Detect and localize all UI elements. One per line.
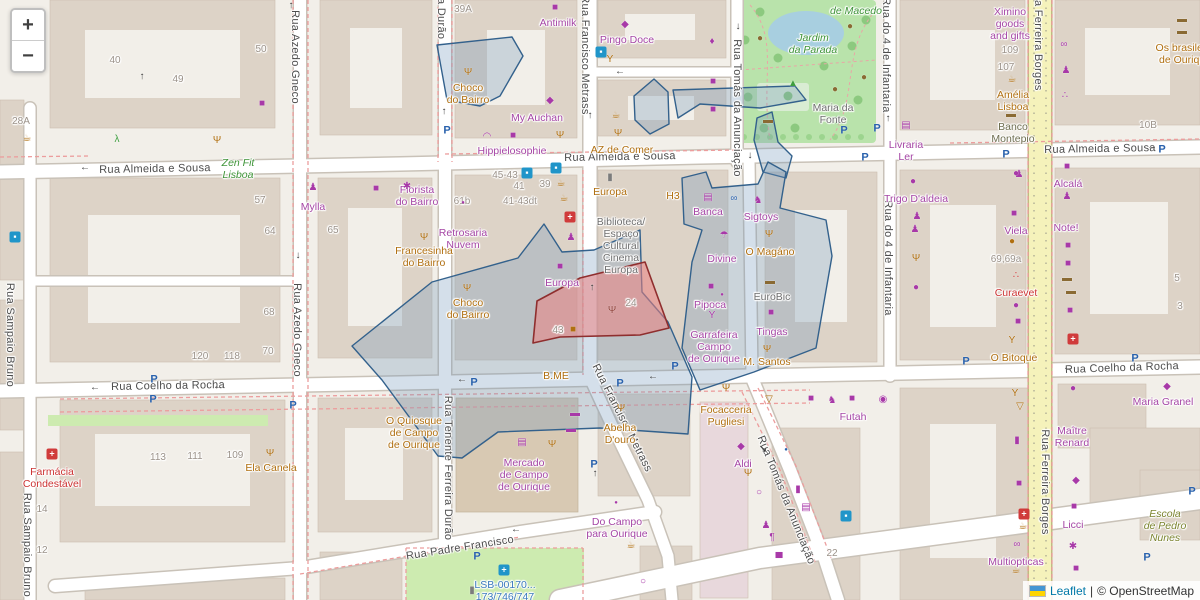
books-icon: ▤: [901, 121, 910, 131]
clothes-icon: ■: [808, 394, 814, 404]
charging-station-icon: +: [499, 565, 510, 576]
street-name-label: Rua Tenente Ferreira Durão: [435, 0, 447, 39]
optician-icon: ∞: [1013, 540, 1020, 550]
person-icon: ♟: [567, 233, 576, 243]
poi-label: Banca: [693, 206, 723, 218]
house-number-label: 109: [1002, 45, 1019, 57]
cafe-icon: ☕: [1008, 75, 1017, 85]
monument-icon: ▮: [469, 586, 475, 596]
scooter-icon: ■: [1015, 317, 1021, 327]
street-name-label: Rua Ferreira Borges: [1032, 0, 1044, 91]
supermarket-cart-icon: ◆: [737, 442, 745, 452]
playground-icon: ▲: [788, 79, 798, 89]
ukraine-flag-icon: [1029, 585, 1046, 597]
cafe-icon: ☕: [612, 111, 621, 121]
parking-icon: P: [470, 378, 477, 389]
house-number-label: 107: [998, 62, 1015, 74]
house-number-label: 14: [36, 504, 47, 516]
poi-label: Maria Granel: [1133, 396, 1194, 408]
parking-icon: P: [861, 153, 868, 164]
oneway-arrow-icon: ↑: [289, 0, 294, 12]
zoom-control: + −: [10, 8, 46, 73]
runner-icon: λ: [115, 135, 120, 145]
poi-label: Os brasileirade Ourique: [1156, 42, 1200, 66]
house-number-label: 41: [513, 181, 524, 193]
sofa-icon: ▄: [775, 548, 782, 558]
bar-icon: Y: [1012, 389, 1019, 399]
leaflet-link[interactable]: Leaflet: [1050, 584, 1086, 598]
poi-label: O Magáno: [745, 246, 794, 258]
florist-icon: ✱: [1069, 542, 1077, 552]
clothes-icon: ■: [552, 3, 558, 13]
bakery-icon: ●: [1013, 301, 1019, 311]
toys-icon: ♞: [828, 396, 837, 406]
poi-label: Alcalá: [1054, 178, 1083, 190]
street-name-label: Rua do 4 de Infantaria: [882, 200, 894, 315]
cake-icon: ♦: [709, 37, 714, 47]
florist-icon: ✱: [403, 182, 411, 192]
house-number-label: 50: [255, 44, 266, 56]
house-number-label: 70: [262, 346, 273, 358]
hat-icon: ◠: [483, 132, 492, 142]
oneway-arrow-icon: ←: [615, 66, 625, 78]
supermarket-cart-icon: ◆: [1163, 382, 1171, 392]
street-name-label: Rua Coelho da Rocha: [1065, 360, 1179, 376]
poi-label: Francesinhado Bairro: [395, 245, 453, 269]
clothes-icon: ■: [710, 77, 716, 87]
planter-icon: ●: [757, 34, 763, 44]
poi-label: Zen FitLisboa: [222, 157, 255, 181]
poi-label: Curaevet: [995, 287, 1038, 299]
poi-label: Europa: [545, 277, 579, 289]
clothes-icon: ■: [1011, 209, 1017, 219]
clothes-icon: ■: [1071, 502, 1077, 512]
poi-label: Licci: [1062, 519, 1083, 531]
fastfood-icon: ▬: [1177, 15, 1187, 25]
house-number-label: 113: [150, 452, 166, 464]
house-number-label: 65: [327, 225, 338, 237]
street-name-label: Rua Almeida e Sousa: [1044, 142, 1156, 156]
poi-label: H3: [666, 190, 679, 202]
poi-label: Tingas: [756, 326, 787, 338]
clothes-icon: ■: [1073, 564, 1079, 574]
cafe-icon: ☕: [1012, 566, 1021, 576]
oneway-arrow-icon: ←: [90, 382, 100, 394]
parking-icon: P: [289, 401, 296, 412]
stall-icon: ▤: [703, 193, 712, 203]
poi-label: Hippielosophie: [478, 145, 547, 157]
poi-dot-icon: ●: [614, 500, 618, 506]
poi-label: Futah: [840, 411, 867, 423]
poi-label: Note!: [1053, 222, 1078, 234]
person-icon: ♟: [1063, 192, 1072, 202]
zoom-in-button[interactable]: +: [12, 10, 44, 41]
cafe-icon: ☕: [560, 194, 569, 204]
poi-label: Mercadode Campode Ourique: [498, 457, 550, 493]
poi-label: FocacceriaPugliesi: [700, 404, 751, 428]
parking-icon: P: [962, 357, 969, 368]
cafe-icon: ☕: [627, 541, 636, 551]
banknote-icon: ▬: [765, 277, 775, 287]
wine-icon: Y: [709, 311, 716, 321]
poi-label: Maria daFonte: [813, 102, 854, 126]
poi-label: Europa: [593, 186, 627, 198]
key-icon: ■: [1065, 259, 1071, 269]
oneway-arrow-icon: →: [1147, 141, 1157, 153]
bakery-icon: ●: [1009, 237, 1015, 247]
parking-icon: P: [149, 395, 156, 406]
optician-icon: ∞: [1060, 40, 1067, 50]
monument-icon: ▮: [607, 173, 613, 183]
street-name-label: Rua Tomás da Anunciação: [731, 39, 743, 177]
zoom-out-button[interactable]: −: [12, 41, 44, 71]
cafe-icon: ☕: [557, 179, 566, 189]
poi-label: MaîtreRenard: [1055, 425, 1089, 449]
bus-stop-icon: ▪: [841, 511, 852, 522]
oneway-arrow-icon: ←: [213, 381, 223, 393]
clothes-icon: ■: [259, 99, 265, 109]
shop-icon: ■: [570, 325, 576, 335]
supermarket-cart-icon: ◆: [1072, 476, 1080, 486]
poi-label: Biblioteca/EspaçoCulturalCinemaEuropa: [597, 216, 645, 276]
poi-label: Chocodo Bairro: [447, 82, 490, 106]
map-canvas[interactable]: Rua Almeida e SousaRua Almeida e SousaRu…: [0, 0, 1200, 600]
street-name-label: Rua Azedo Gneco: [289, 10, 301, 104]
parking-icon: P: [150, 375, 157, 386]
clothes-icon: ■: [1016, 479, 1022, 489]
house-number-label: 111: [187, 451, 202, 463]
poi-dot-icon: ●: [784, 447, 788, 453]
parking-icon: P: [1158, 145, 1165, 156]
poi-label: AZ de Comer: [591, 144, 653, 156]
oneway-arrow-icon: ↓: [736, 21, 741, 33]
house-number-label: 120: [192, 351, 209, 363]
first-aid-icon: +: [1019, 509, 1030, 520]
bar-icon: Y: [607, 55, 614, 65]
oneway-arrow-icon: ←: [80, 162, 90, 174]
restaurant-icon: Ψ: [614, 129, 622, 139]
bar-icon: Y: [1009, 336, 1016, 346]
house-number-label: 69,69a: [991, 254, 1022, 266]
house-number-label: 109: [227, 450, 244, 462]
stall-icon: ▤: [517, 438, 526, 448]
poi-label: LSB-00170...173/746/747: [474, 579, 535, 600]
poi-label: Jardimda Parada: [789, 32, 837, 56]
street-name-label: Rua Azedo Gneco: [291, 283, 303, 377]
umbrella-icon: ☂: [720, 231, 729, 241]
books-icon: ▤: [801, 503, 810, 513]
jewelry-icon: ○: [640, 577, 646, 587]
first-aid-icon: +: [47, 449, 58, 460]
oneway-arrow-icon: ←: [648, 371, 658, 383]
oneway-arrow-icon: ↓: [296, 250, 301, 262]
parking-icon: P: [443, 126, 450, 137]
poi-label: Trigo D'aldeia: [884, 193, 948, 205]
restaurant-icon: Ψ: [722, 384, 730, 394]
parking-icon: P: [1002, 150, 1009, 161]
poi-label: de Macedo: [830, 5, 882, 17]
house-number-label: 49: [172, 74, 183, 86]
banknote-icon: ▬: [1066, 287, 1076, 297]
fitness-icon: ▬: [570, 409, 580, 419]
person-icon: ♟: [913, 212, 922, 222]
house-number-label: 43: [552, 325, 563, 337]
person-icon: ♟: [911, 225, 920, 235]
cafe-icon: ☕: [1019, 522, 1028, 532]
fitness-icon: ▬: [566, 425, 576, 435]
parking-icon: P: [1188, 487, 1195, 498]
house-number-label: 24: [625, 298, 636, 310]
poi-label: Do Campopara Ourique: [586, 516, 647, 540]
poi-label: GarrafeiraCampode Ourique: [688, 329, 740, 365]
oneway-arrow-icon: ←: [457, 374, 467, 386]
house-number-label: 3: [1177, 301, 1183, 313]
osm-attribution: © OpenStreetMap: [1097, 584, 1194, 598]
laundry-icon: ◉: [879, 395, 888, 405]
poi-label: Viela: [1004, 225, 1027, 237]
bag-icon: ▮: [1014, 436, 1020, 446]
clothes-icon: ■: [708, 282, 714, 292]
oneway-arrow-icon: ↓: [748, 150, 753, 162]
house-number-label: 41-43dt: [503, 196, 537, 208]
poi-label: Pingo Doce: [600, 34, 654, 46]
poi-label: Chocodo Bairro: [447, 297, 490, 321]
bakery-icon: ●: [913, 283, 919, 293]
clothes-icon: ■: [768, 308, 774, 318]
street-name-label: Rua Sampaio Bruno: [21, 493, 33, 597]
poi-label: Ela Canela: [245, 462, 296, 474]
house-number-label: 39A: [454, 4, 472, 16]
person-icon: ♟: [762, 521, 771, 531]
house-number-label: 12: [36, 545, 47, 557]
planter-icon: ●: [832, 85, 838, 95]
bus-stop-icon: ▪: [551, 163, 562, 174]
cafe-icon: ☕: [23, 134, 32, 144]
bus-stop-icon: ▪: [10, 232, 21, 243]
supermarket-cart-icon: ◆: [621, 20, 629, 30]
street-name-label: Rua Padre Francisco: [405, 534, 515, 563]
poi-label: Divine: [707, 253, 736, 265]
poi-label: M. Santos: [743, 356, 790, 368]
bag-icon: ▮: [795, 485, 801, 495]
attribution-bar: Leaflet | © OpenStreetMap: [1023, 581, 1200, 600]
oneway-arrow-icon: ←: [511, 524, 521, 536]
house-number-label: 57: [254, 195, 265, 207]
parking-icon: P: [590, 460, 597, 471]
restaurant-icon: Ψ: [548, 440, 556, 450]
oneway-arrow-icon: ↑: [442, 106, 447, 118]
paw-icon: ∴: [1013, 271, 1019, 281]
pet-icon: ∴: [1062, 91, 1068, 101]
poi-label: Antimilk: [540, 17, 577, 29]
street-name-label: Rua Tenente Ferreira Durão: [442, 396, 454, 541]
clothes-icon: ■: [849, 394, 855, 404]
clothes-icon: ■: [1065, 241, 1071, 251]
house-number-label: 5: [1174, 273, 1180, 285]
house-number-label: 22: [826, 548, 837, 560]
poi-label: AbelhaD'ouro: [604, 422, 637, 446]
parking-icon: P: [671, 362, 678, 373]
bicycle-icon: ∞: [730, 194, 737, 204]
street-name-label: Rua Sampaio Bruno: [4, 283, 16, 387]
restaurant-icon: Ψ: [765, 230, 773, 240]
street-name-label: Rua Almeida e Sousa: [99, 162, 211, 176]
house-number-label: 39: [539, 179, 550, 191]
greengrocer-icon: ●: [1070, 384, 1076, 394]
banknote-icon: ▬: [1062, 274, 1072, 284]
house-number-label: 64: [264, 226, 275, 238]
restaurant-icon: Ψ: [420, 233, 428, 243]
restaurant-icon: Ψ: [617, 404, 625, 414]
clothes-icon: ■: [710, 105, 716, 115]
street-name-label: Rua Ferreira Borges: [1039, 429, 1051, 534]
oneway-arrow-icon: ↑: [588, 110, 593, 122]
oneway-arrow-icon: ↑: [886, 113, 891, 125]
bakery-icon: ●: [910, 177, 916, 187]
parking-icon: P: [616, 379, 623, 390]
parking-icon: P: [840, 126, 847, 137]
house-number-label: 68: [263, 307, 274, 319]
house-number-label: 118: [224, 351, 240, 363]
clothes-icon: ■: [1067, 306, 1073, 316]
restaurant-icon: Ψ: [556, 131, 564, 141]
planter-icon: ●: [847, 22, 853, 32]
poi-label: FarmáciaCondestável: [23, 466, 81, 490]
icecream-icon: ▽: [765, 395, 773, 405]
bus-stop-icon: ▪: [522, 168, 533, 179]
poi-label: Ximinogoodsand gifts: [990, 6, 1030, 42]
poi-label: O Bitoque: [991, 352, 1038, 364]
poi-label: O Quiosquede Campode Ourique: [386, 415, 442, 451]
person-icon: ♟: [1062, 66, 1071, 76]
poi-label: LivrariaLer: [889, 139, 923, 163]
poi-label: Escolade PedroNunes: [1144, 508, 1187, 544]
parking-icon: P: [473, 552, 480, 563]
planter-icon: ●: [861, 73, 867, 83]
oneway-arrow-icon: ↘: [759, 444, 767, 456]
house-number-label: 10B: [1139, 120, 1157, 132]
basket-icon: ◆: [546, 96, 554, 106]
parking-icon: P: [1131, 354, 1138, 365]
icecream-icon: ▽: [1016, 402, 1024, 412]
house-number-label: 40: [109, 55, 120, 67]
bakery-icon: ●: [1013, 169, 1019, 179]
person-icon: ♟: [309, 183, 318, 193]
restaurant-icon: Ψ: [266, 449, 274, 459]
oneway-arrow-icon: ←: [1063, 362, 1073, 374]
restaurant-icon: Ψ: [608, 306, 616, 316]
restaurant-icon: Ψ: [744, 469, 752, 479]
first-aid-icon: +: [565, 212, 576, 223]
restaurant-icon: Ψ: [213, 136, 221, 146]
first-aid-icon: +: [1068, 334, 1079, 345]
restaurant-icon: Ψ: [463, 284, 471, 294]
bench-icon: ▬: [763, 116, 773, 126]
bus-stop-icon: ▪: [596, 47, 607, 58]
poi-label: EuroBic: [754, 291, 791, 303]
street-name-label: Rua Francisco Metrass: [579, 0, 591, 115]
restaurant-icon: Ψ: [464, 68, 472, 78]
fastfood-icon: ▬: [1177, 27, 1187, 37]
oneway-arrow-icon: ↑: [590, 282, 595, 294]
parking-icon: P: [1143, 553, 1150, 564]
clothes-icon: ■: [557, 262, 563, 272]
poi-dot-icon: ●: [720, 292, 724, 298]
attribution-separator: |: [1090, 584, 1093, 598]
clothes-icon: ■: [373, 184, 379, 194]
restaurant-icon: Ψ: [763, 345, 771, 355]
parking-icon: P: [873, 124, 880, 135]
poi-label: My Auchan: [511, 112, 563, 124]
restaurant-icon: Ψ: [912, 254, 920, 264]
poi-dot-icon: ●: [461, 200, 465, 206]
jewelry-icon: ○: [756, 488, 762, 498]
toys-icon: ♞: [754, 196, 763, 206]
oneway-arrow-icon: ↑: [140, 71, 145, 83]
clothes-icon: ■: [1064, 162, 1070, 172]
poi-label: Mylla: [301, 201, 326, 213]
house-number-label: 28A: [12, 116, 30, 128]
poi-label: Sigtoys: [744, 211, 778, 223]
map-labels-layer: Rua Almeida e SousaRua Almeida e SousaRu…: [0, 0, 1200, 600]
lamp-icon: ¶: [769, 533, 774, 543]
poi-label: B.ME: [543, 370, 569, 382]
poi-label: BancoMontepio: [991, 121, 1034, 145]
street-name-label: Rua Coelho da Rocha: [111, 379, 225, 393]
clothes-icon: ■: [510, 131, 516, 141]
bank-icon: ▬: [1006, 110, 1016, 120]
